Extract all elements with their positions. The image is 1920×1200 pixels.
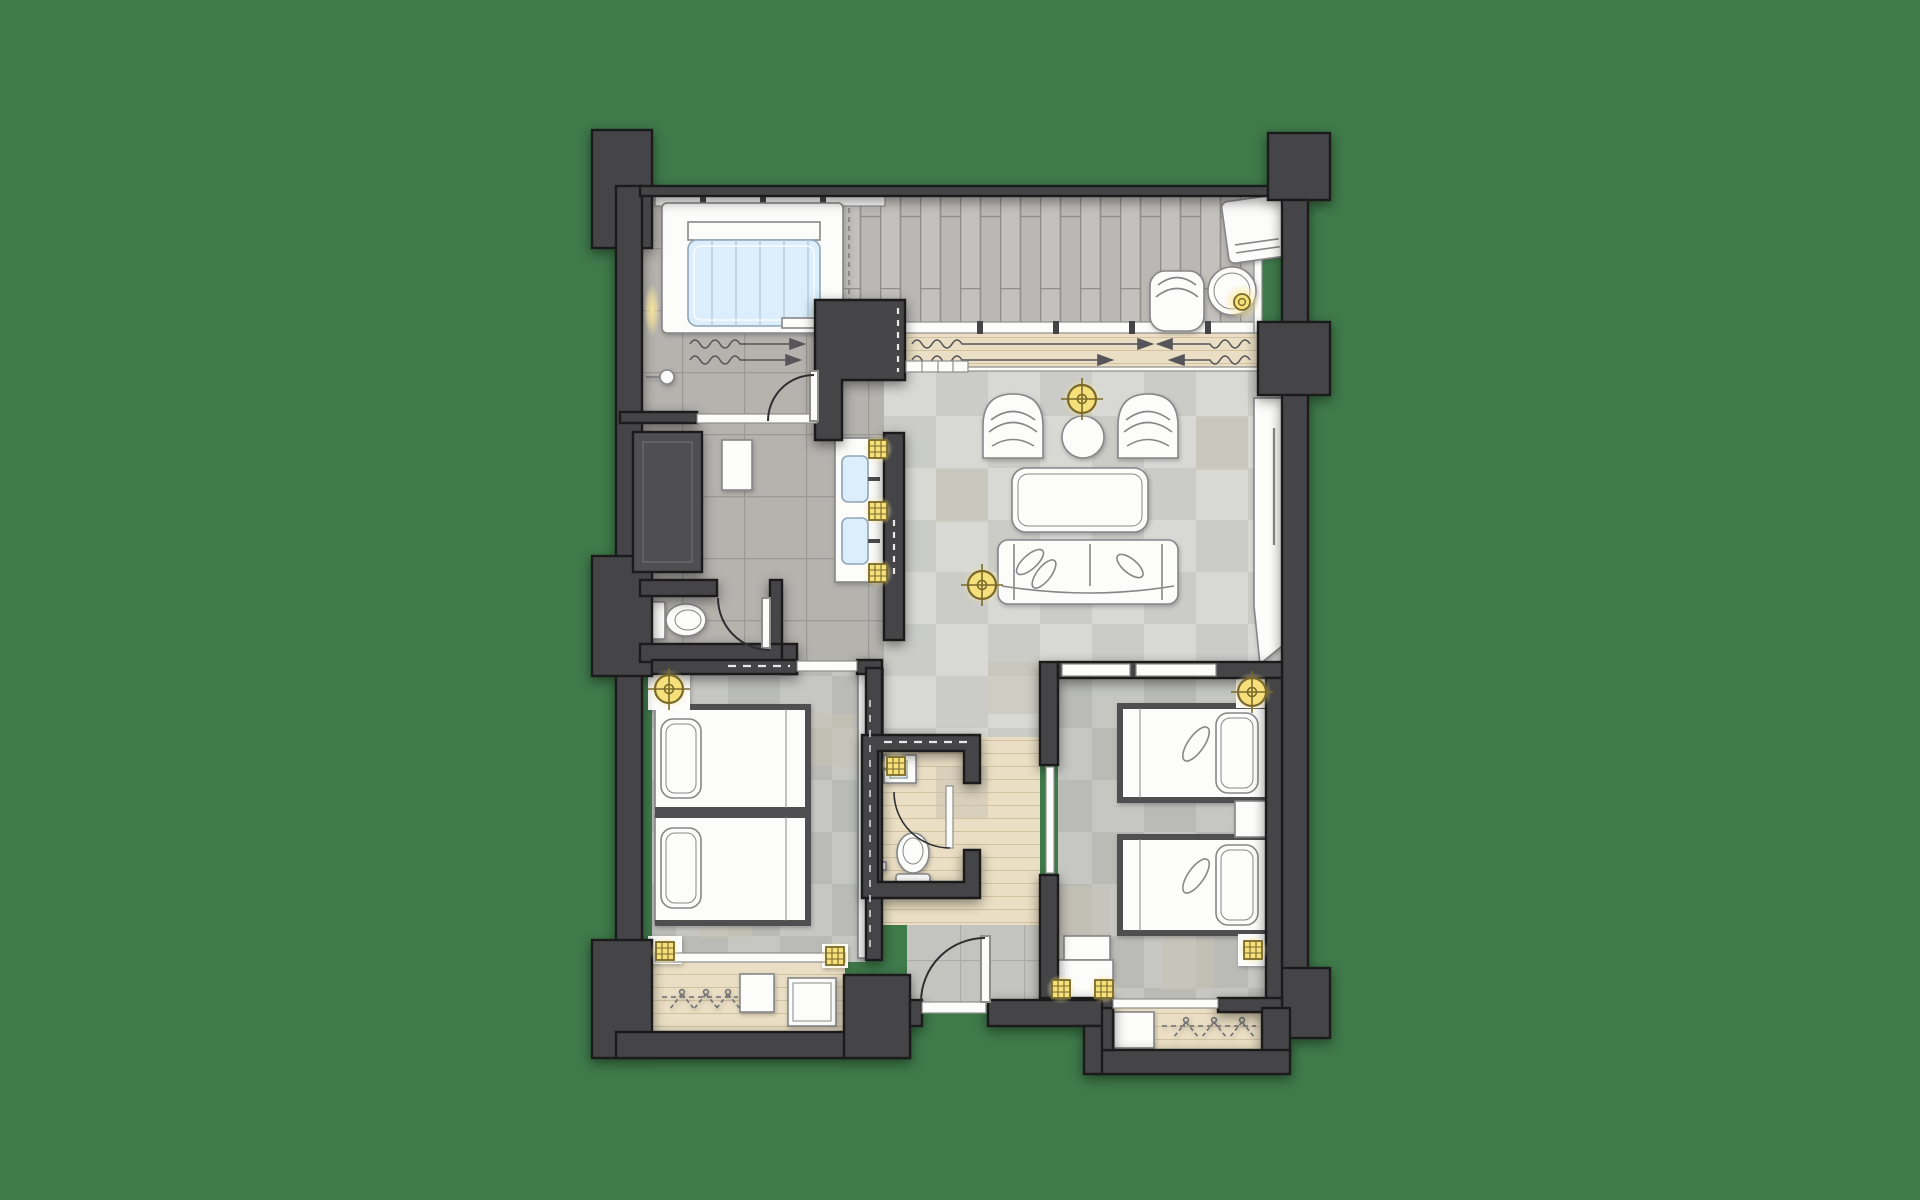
bedroom2-sliding-leaf [1046,767,1054,873]
barrel-armchair-1 [983,394,1043,458]
wall-right [1282,200,1308,975]
twin-bed-2a [1120,706,1266,800]
pillar-top-right [1268,133,1330,200]
twin-bed-2b [1120,837,1266,933]
downlight-icon [881,751,911,781]
bedroom2-top-glass-1 [1062,664,1130,676]
wall-balcony-rail [640,186,1268,196]
downlight-icon [863,558,893,588]
floor-plan-canvas [0,0,1920,1200]
parked-door-panels [906,361,968,372]
bedroom2-top-glass-2 [1136,664,1216,676]
floor-entry-tile [907,925,1040,1005]
downlight-icon [820,941,850,971]
nightstand [1235,801,1266,837]
wall-bedroom2-headboard [1266,678,1282,1005]
bathroom-door-track [697,414,817,423]
entry-door-sill [922,1002,986,1013]
pillar-mid-right [1258,322,1330,395]
wall-entry-stub [910,1000,922,1026]
dining-table [1012,468,1148,532]
drawer-box [740,974,774,1012]
round-side-table [1062,416,1104,458]
wall-bath-south [620,412,697,423]
downlight-icon [1046,974,1076,1004]
twin-bed-1a [655,707,808,810]
wall-bedroom2-left-upper [1040,662,1058,765]
closet1-sliding-doors [655,953,845,962]
bedroom1-door-track [797,661,857,671]
wall-entry-right [988,1000,1102,1026]
twin-bed-1b [655,815,808,923]
curtain-panel [1254,398,1282,664]
wc2-door-leaf [946,786,953,848]
wall-light-glow [644,284,660,336]
wall-entry-step [1084,1026,1102,1074]
closet2-sliding-doors [1113,999,1218,1008]
wall-closet2-bottom [1095,1050,1290,1074]
downlight-icon [1089,974,1119,1004]
downlight-icon [1238,935,1268,965]
luggage-rack [788,978,836,1026]
pillar-entry [844,975,910,1058]
stool [722,440,752,490]
downlight-icon [863,434,893,464]
wall-wc1-top [640,580,717,596]
lounge-chair [1221,194,1289,264]
sofa [998,540,1178,604]
floor-plan-image [0,0,1920,1200]
downlight-icon [863,496,893,526]
terrace-armchair [1150,271,1204,331]
drawer-box [1114,1012,1154,1048]
barrel-armchair-2 [1118,394,1178,458]
downlight-icon [650,936,680,966]
table-lamp-icon [1224,284,1260,320]
